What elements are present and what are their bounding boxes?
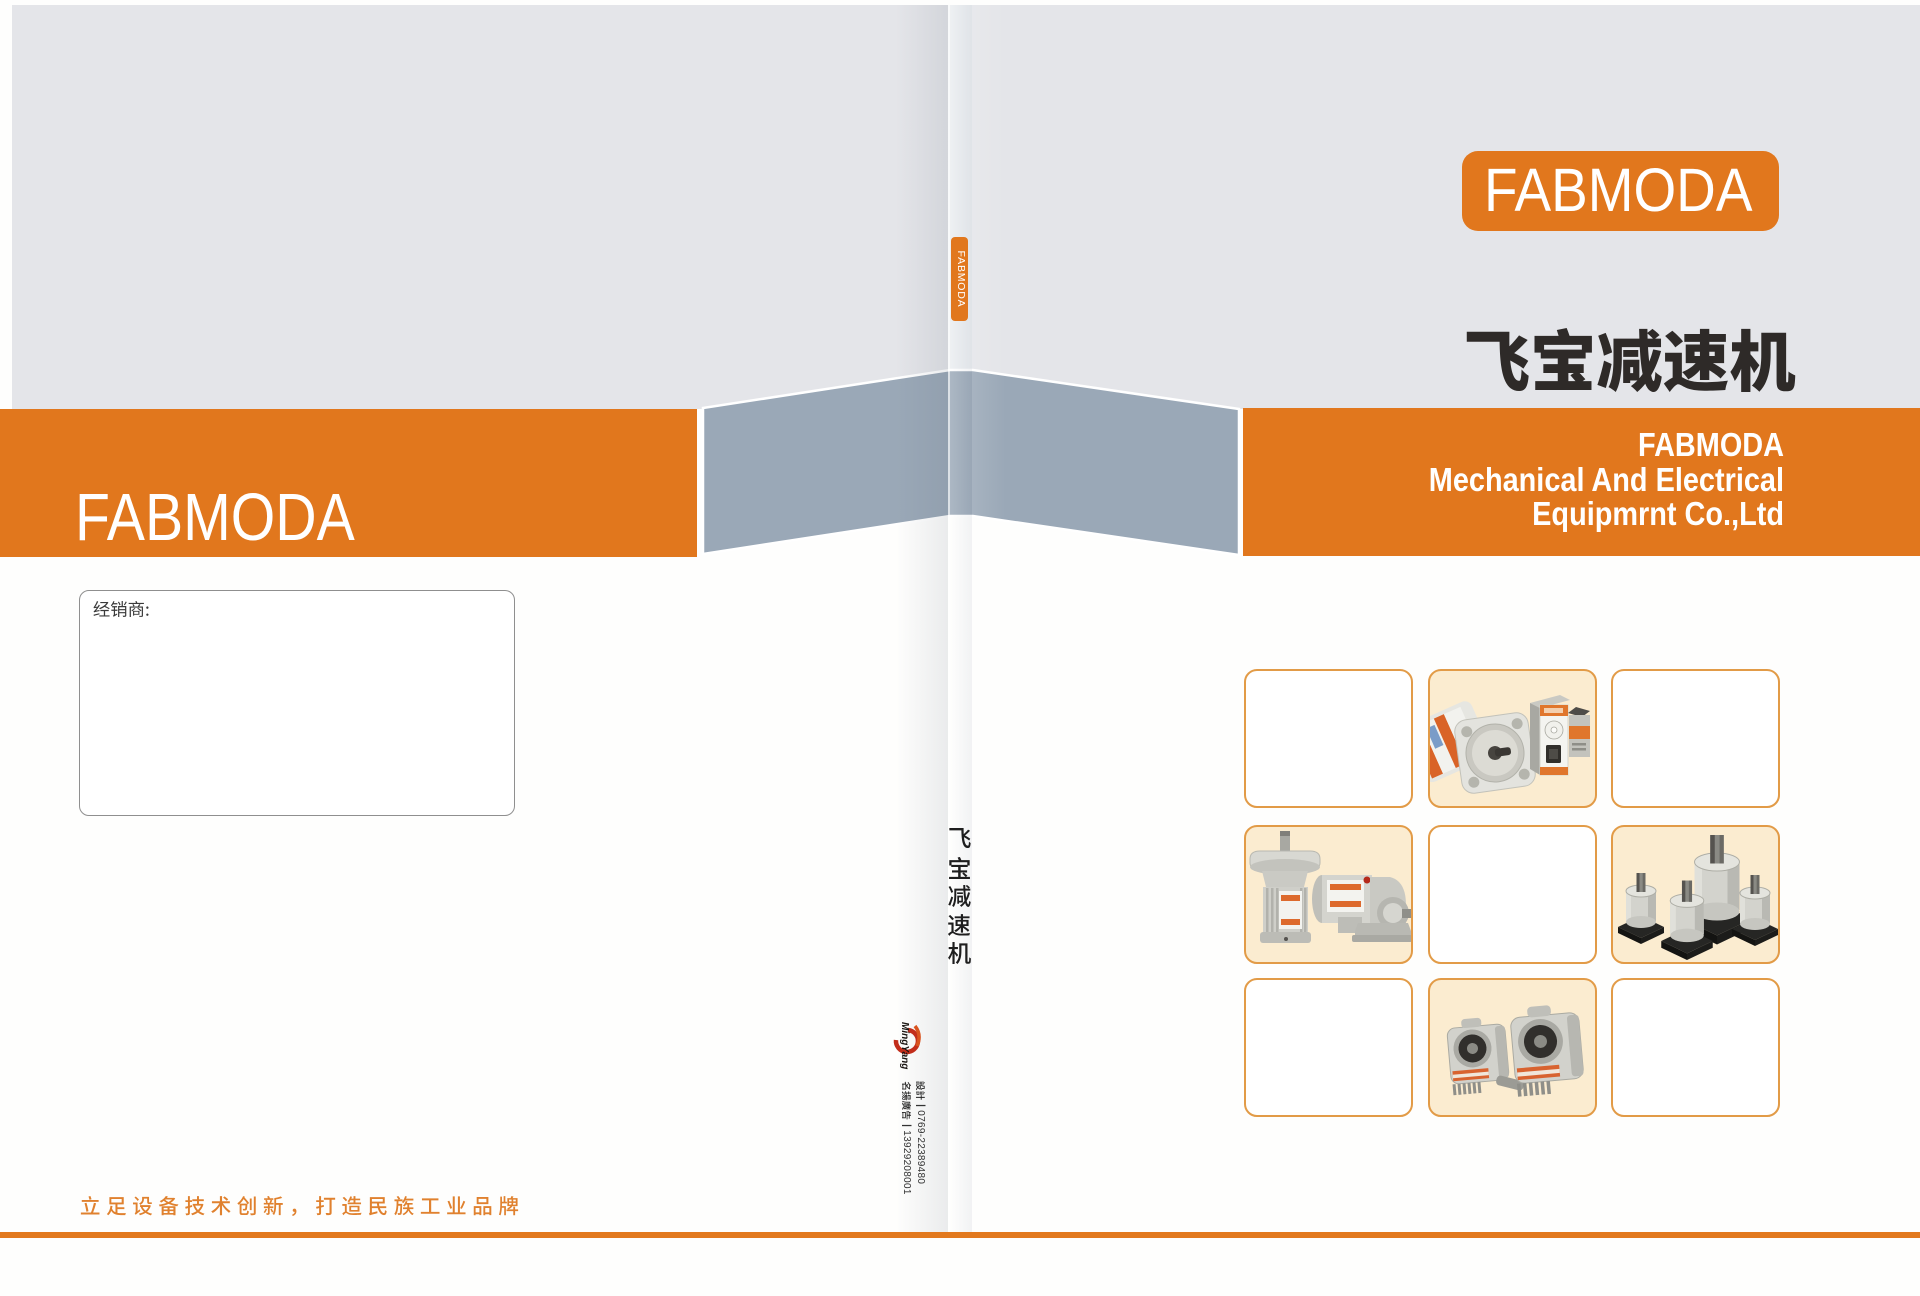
svg-text:MingYang: MingYang xyxy=(899,1022,910,1069)
